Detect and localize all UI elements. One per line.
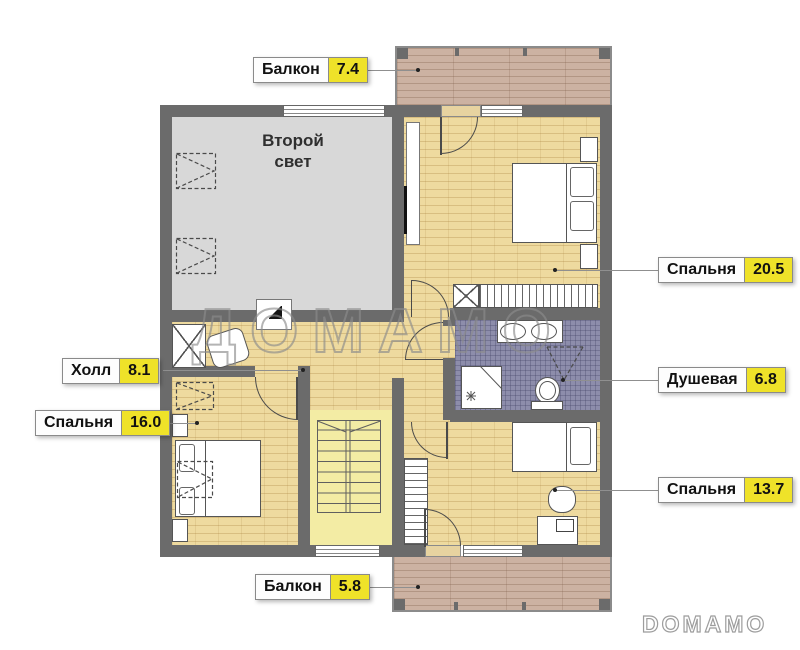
label-pointer-line [556, 270, 658, 271]
wall-top [385, 105, 441, 117]
balcony-post [454, 602, 458, 610]
balcony-post [599, 599, 610, 610]
balcony-post [522, 602, 526, 610]
balcony-bottom [392, 556, 612, 612]
watermark-corner: DOMAMO [642, 611, 767, 638]
wall-shower-bottom [450, 410, 600, 422]
balcony-post [523, 48, 527, 56]
room-name: Балкон [253, 57, 329, 83]
wall-top [523, 105, 612, 117]
room-area: 20.5 [745, 257, 793, 283]
label-pointer-line [163, 370, 305, 371]
window [463, 545, 523, 557]
label-pointer-dot [416, 585, 420, 589]
pillow [179, 487, 195, 515]
nightstand [172, 414, 188, 437]
wall-bottom [380, 545, 425, 557]
balcony-door-sill [441, 105, 481, 117]
room-name: Душевая [658, 367, 747, 393]
second-light-line1: Второй [233, 130, 353, 151]
label-pointer-dot [195, 421, 199, 425]
room-name: Спальня [658, 257, 745, 283]
balcony-top [395, 46, 612, 105]
room-area: 8.1 [120, 358, 159, 384]
room-name: Спальня [35, 410, 122, 436]
window [283, 105, 385, 117]
toilet-tank [531, 401, 563, 410]
label-pointer-dot [553, 488, 557, 492]
room-area: 7.4 [329, 57, 368, 83]
door-leaf [296, 377, 298, 420]
wall-bottom [160, 545, 315, 557]
tv-shelf [406, 122, 420, 245]
wall-bottom [523, 545, 612, 557]
wall-stairs-right [392, 378, 404, 545]
toilet-seat [539, 381, 556, 400]
laptop-icon [556, 519, 574, 532]
room-name: Балкон [255, 574, 331, 600]
stairs-floor [310, 410, 392, 545]
pillow [179, 444, 195, 472]
pillow [570, 427, 591, 465]
label-pointer-dot [416, 68, 420, 72]
room-area: 16.0 [122, 410, 170, 436]
wall-top [160, 105, 283, 117]
window [315, 545, 380, 557]
shower-stall [461, 366, 502, 409]
pillow [570, 201, 594, 231]
room-label-bedroom-left: Спальня 16.0 [35, 410, 170, 436]
door-leaf [440, 117, 442, 155]
balcony-post [394, 599, 405, 610]
room-label-balcony-bottom: Балкон 5.8 [255, 574, 370, 600]
label-pointer-line [564, 380, 658, 381]
room-area: 6.8 [747, 367, 786, 393]
balcony-door-sill [425, 545, 461, 557]
room-area: 5.8 [331, 574, 370, 600]
tv-icon [404, 186, 407, 234]
room-label-hall: Холл 8.1 [62, 358, 159, 384]
second-light-room-label: Второй свет [233, 130, 353, 173]
balcony-post [455, 48, 459, 56]
door-leaf [446, 422, 448, 459]
bed-line [566, 423, 567, 471]
bed-headboard-line [566, 164, 567, 242]
pillow [570, 167, 594, 197]
balcony-post [599, 48, 610, 59]
room-area: 13.7 [745, 477, 793, 503]
wall-left [160, 105, 172, 557]
wall-second-light-right [392, 117, 404, 322]
room-name: Холл [62, 358, 120, 384]
nightstand [580, 137, 598, 162]
bed-line [205, 441, 206, 516]
room-name: Спальня [658, 477, 745, 503]
label-pointer-dot [553, 268, 557, 272]
label-pointer-dot [301, 368, 305, 372]
nightstand [172, 519, 188, 542]
watermark-center: ДОМАМО [192, 296, 622, 367]
second-light-line2: свет [233, 151, 353, 172]
window [481, 105, 523, 117]
door-leaf [424, 509, 426, 547]
balcony-post [397, 48, 408, 59]
room-label-balcony-top: Балкон 7.4 [253, 57, 368, 83]
room-label-shower: Душевая 6.8 [658, 367, 786, 393]
label-pointer-dot [561, 378, 565, 382]
nightstand [580, 244, 598, 269]
label-pointer-line [556, 490, 658, 491]
wall-stairs-left [298, 366, 310, 545]
room-label-bedroom-right: Спальня 20.5 [658, 257, 793, 283]
room-label-bedroom-bottom-right: Спальня 13.7 [658, 477, 793, 503]
floor-plan-canvas: Второй свет [0, 0, 800, 650]
